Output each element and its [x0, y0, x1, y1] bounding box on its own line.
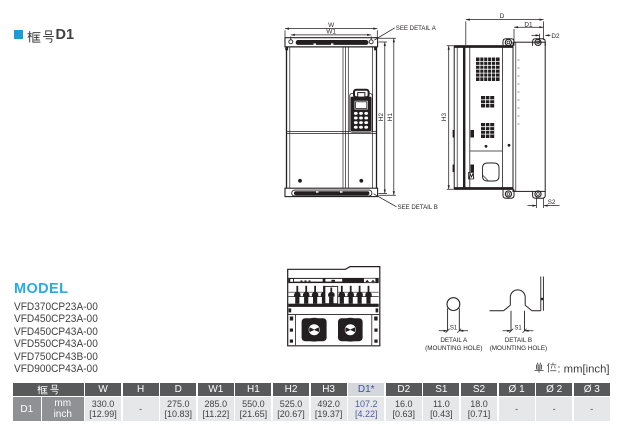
- svg-text:S1: S1: [514, 326, 522, 332]
- svg-text:H2: H2: [378, 112, 385, 121]
- svg-text:D1: D1: [524, 21, 533, 28]
- svg-text:SEE DETAIL B: SEE DETAIL B: [398, 204, 438, 211]
- svg-text:SEE DETAIL A: SEE DETAIL A: [396, 25, 437, 32]
- svg-text:DETAIL B: DETAIL B: [505, 337, 532, 344]
- svg-text:DETAIL A: DETAIL A: [440, 337, 468, 344]
- svg-text:W1: W1: [326, 29, 336, 36]
- svg-text:(MOUNTING HOLE): (MOUNTING HOLE): [425, 345, 482, 352]
- svg-text:H1: H1: [387, 112, 394, 121]
- svg-text:S2: S2: [548, 199, 556, 206]
- svg-text:: mm[inch]: : mm[inch]: [557, 364, 609, 376]
- svg-text:D2: D2: [551, 33, 560, 40]
- svg-text:(MOUNTING HOLE): (MOUNTING HOLE): [490, 345, 547, 352]
- svg-text:S1: S1: [450, 326, 458, 332]
- svg-text:D: D: [500, 13, 505, 20]
- svg-text:H3: H3: [441, 112, 448, 121]
